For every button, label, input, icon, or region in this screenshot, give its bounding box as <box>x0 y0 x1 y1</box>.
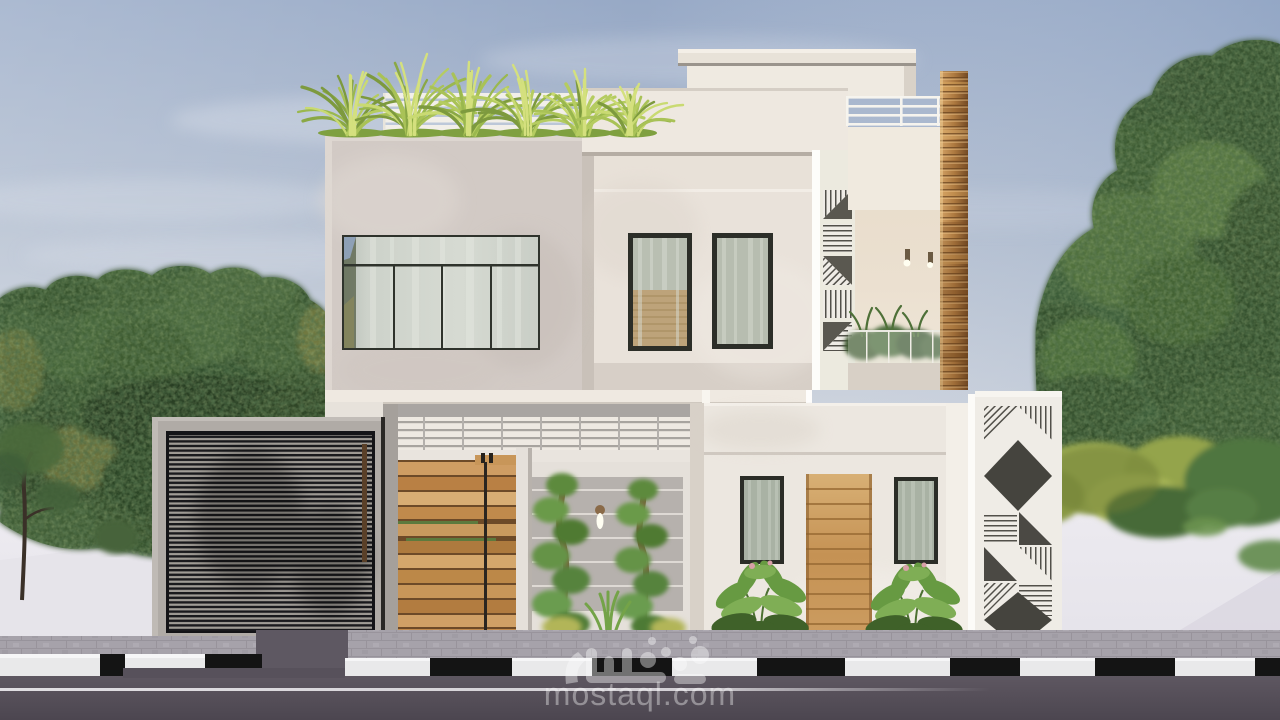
svg-text:mostaql.com: mostaql.com <box>544 676 736 712</box>
